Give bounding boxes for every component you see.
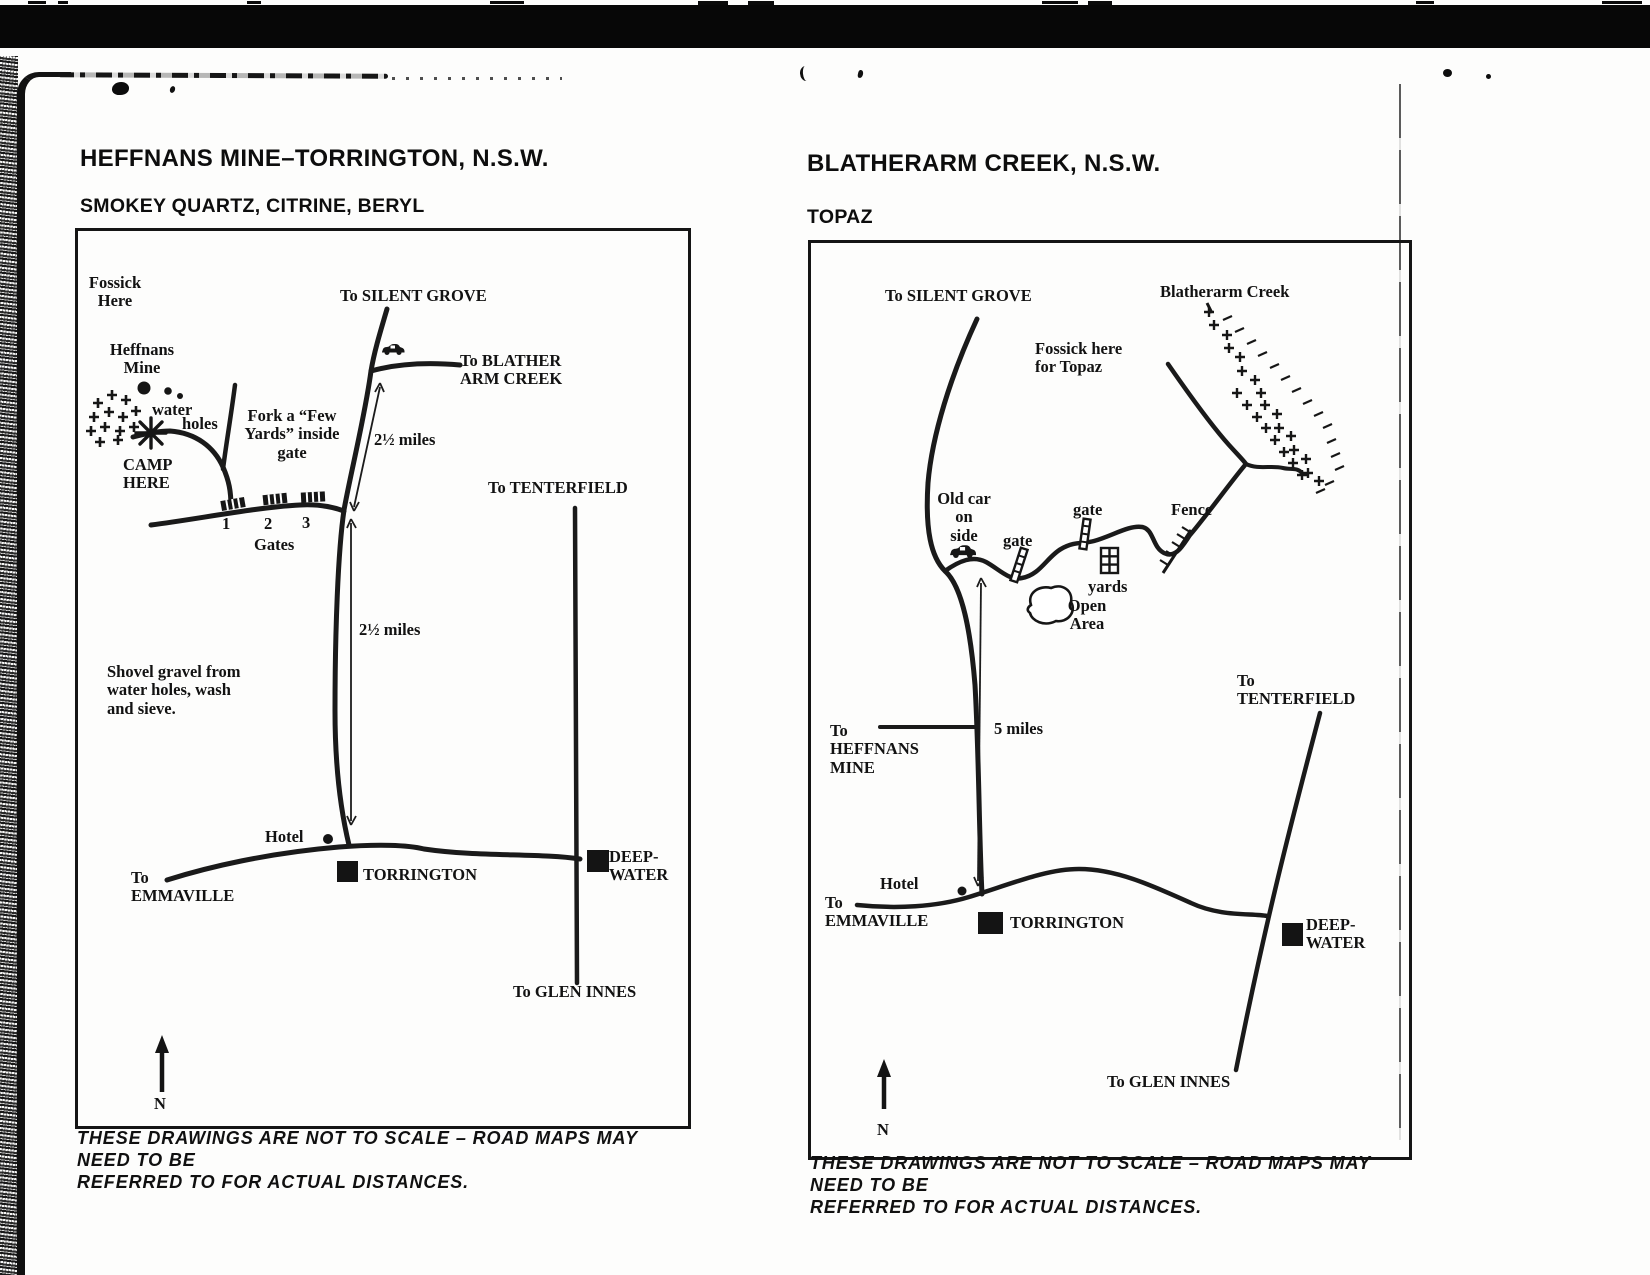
scan-artifact-tick — [1602, 1, 1642, 4]
label-north: N — [877, 1121, 889, 1139]
label-five-miles: 5 miles — [994, 720, 1043, 738]
label-north: N — [154, 1095, 166, 1113]
label-to-emmaville: To EMMAVILLE — [825, 894, 928, 931]
label-hotel: Hotel — [880, 875, 919, 893]
map-title-heffnans: HEFFNANS MINE–TORRINGTON, N.S.W. — [80, 145, 549, 173]
label-to-emmaville: To EMMAVILLE — [131, 869, 234, 906]
label-fork-note: Fork a “Few Yards” inside gate — [234, 407, 350, 462]
label-open-area: Open Area — [1055, 597, 1119, 634]
label-shovel-note: Shovel gravel from water holes, wash and… — [107, 663, 241, 718]
car-icon — [950, 545, 976, 558]
label-miles-upper: 2½ miles — [374, 431, 435, 449]
label-gate-1: gate — [1003, 532, 1032, 550]
scan-artifact-left-line — [17, 92, 25, 1275]
label-to-glen-innes: To GLEN INNES — [1107, 1073, 1230, 1091]
scan-artifact-tick — [28, 1, 46, 4]
scan-artifact-corner — [17, 72, 71, 117]
town-marker-deepwater — [587, 850, 609, 872]
waterhole-dot-icon — [177, 393, 183, 399]
scan-artifact-blob — [112, 82, 129, 95]
scan-artifact-dot — [1486, 74, 1491, 79]
label-fence: Fence — [1171, 501, 1212, 519]
label-deep-water: DEEP- WATER — [1306, 916, 1365, 953]
scan-artifact-tick — [1416, 1, 1434, 4]
north-arrow-icon — [155, 1035, 169, 1092]
label-blatherarm-creek: Blatherarm Creek — [1160, 283, 1289, 301]
map-footnote-blatherarm: THESE DRAWINGS ARE NOT TO SCALE – ROAD M… — [810, 1153, 1430, 1219]
map-footnote-heffnans: THESE DRAWINGS ARE NOT TO SCALE – ROAD M… — [77, 1128, 697, 1194]
label-to-glen-innes: To GLEN INNES — [513, 983, 636, 1001]
scanned-book-page: HEFFNANS MINE–TORRINGTON, N.S.W. SMOKEY … — [0, 0, 1650, 1275]
scan-artifact-paren-mark — [799, 65, 813, 81]
label-gate-number-3: 3 — [302, 514, 310, 532]
scan-artifact-comma-mark — [857, 70, 864, 79]
waterhole-dot-icon — [164, 387, 172, 395]
label-to-heffnans-mine: To HEFFNANS MINE — [830, 722, 919, 777]
gate-1-icon — [220, 497, 245, 511]
scan-artifact-ragged-line — [58, 72, 388, 78]
road-tenterfield-glen-innes — [1236, 713, 1320, 1070]
label-gate-number-2: 2 — [264, 515, 272, 533]
road-gates-track — [151, 505, 344, 525]
map-subtitle-heffnans: SMOKEY QUARTZ, CITRINE, BERYL — [80, 195, 425, 218]
label-gate-number-1: 1 — [222, 515, 230, 533]
town-marker-torrington — [337, 861, 358, 882]
label-to-blather-arm-creek: To BLATHER ARM CREEK — [460, 352, 562, 389]
map-subtitle-blatherarm: TOPAZ — [807, 206, 873, 229]
hotel-dot-icon — [323, 834, 333, 844]
scan-artifact-tick — [58, 1, 68, 4]
label-gate-2: gate — [1073, 501, 1102, 519]
gate-2-icon — [263, 493, 288, 505]
label-gates: Gates — [254, 536, 294, 554]
town-marker-torrington — [978, 912, 1003, 934]
gate-3-icon — [301, 491, 325, 502]
label-old-car: Old car on side — [932, 490, 996, 545]
label-fossick-topaz: Fossick here for Topaz — [1035, 340, 1122, 377]
label-hotel: Hotel — [265, 828, 304, 846]
scan-artifact-tick — [748, 1, 774, 5]
car-icon — [382, 344, 405, 355]
label-miles-lower: 2½ miles — [359, 621, 420, 639]
label-to-tenterfield: To TENTERFIELD — [1237, 672, 1355, 709]
road-to-blather-arm-creek — [371, 364, 460, 371]
label-deep-water: DEEP- WATER — [609, 848, 668, 885]
road-silent-grove-torrington — [927, 319, 982, 894]
road-tenterfield-glen-innes — [575, 508, 577, 983]
map-canvas-blatherarm: To SILENT GROVE Blatherarm Creek Fossick… — [808, 240, 1412, 1160]
scan-artifact-tick — [247, 1, 261, 4]
creek-bank-line — [1168, 364, 1246, 464]
scan-artifact-left-edge — [0, 56, 18, 1275]
label-to-tenterfield: To TENTERFIELD — [488, 479, 628, 497]
town-marker-deepwater — [1282, 923, 1303, 946]
label-heffnans-mine: Heffnans Mine — [106, 341, 178, 378]
scan-artifact-tick — [1042, 1, 1078, 4]
scan-artifact-dot — [169, 85, 176, 93]
map-canvas-heffnans: Fossick Here To SILENT GROVE Heffnans Mi… — [75, 228, 691, 1129]
mine-dot-icon — [138, 382, 151, 395]
camp-icon — [136, 418, 166, 448]
label-torrington: TORRINGTON — [363, 866, 477, 884]
scan-artifact-tick — [1088, 1, 1112, 5]
hotel-dot-icon — [958, 887, 967, 896]
scan-artifact-ragged-line-tail — [392, 77, 562, 80]
creek-hatching-icon — [1204, 303, 1344, 493]
label-fossick-here: Fossick Here — [84, 274, 146, 311]
north-arrow-icon — [877, 1059, 891, 1109]
label-torrington: TORRINGTON — [1010, 914, 1124, 932]
map-title-blatherarm: BLATHERARM CREEK, N.S.W. — [807, 150, 1160, 178]
scan-artifact-tick — [490, 1, 524, 4]
scan-artifact-top-bar — [0, 5, 1650, 48]
label-yards: yards — [1088, 578, 1127, 596]
yards-icon — [1101, 548, 1118, 573]
gate-2-icon — [1079, 519, 1090, 550]
label-to-silent-grove: To SILENT GROVE — [885, 287, 1032, 305]
label-camp-here: CAMP HERE — [123, 456, 172, 493]
scan-artifact-tick — [698, 1, 728, 5]
label-to-silent-grove: To SILENT GROVE — [340, 287, 487, 305]
measure-arrow-lower — [347, 519, 356, 825]
scan-artifact-dot — [1443, 69, 1452, 77]
label-holes: holes — [182, 415, 218, 433]
